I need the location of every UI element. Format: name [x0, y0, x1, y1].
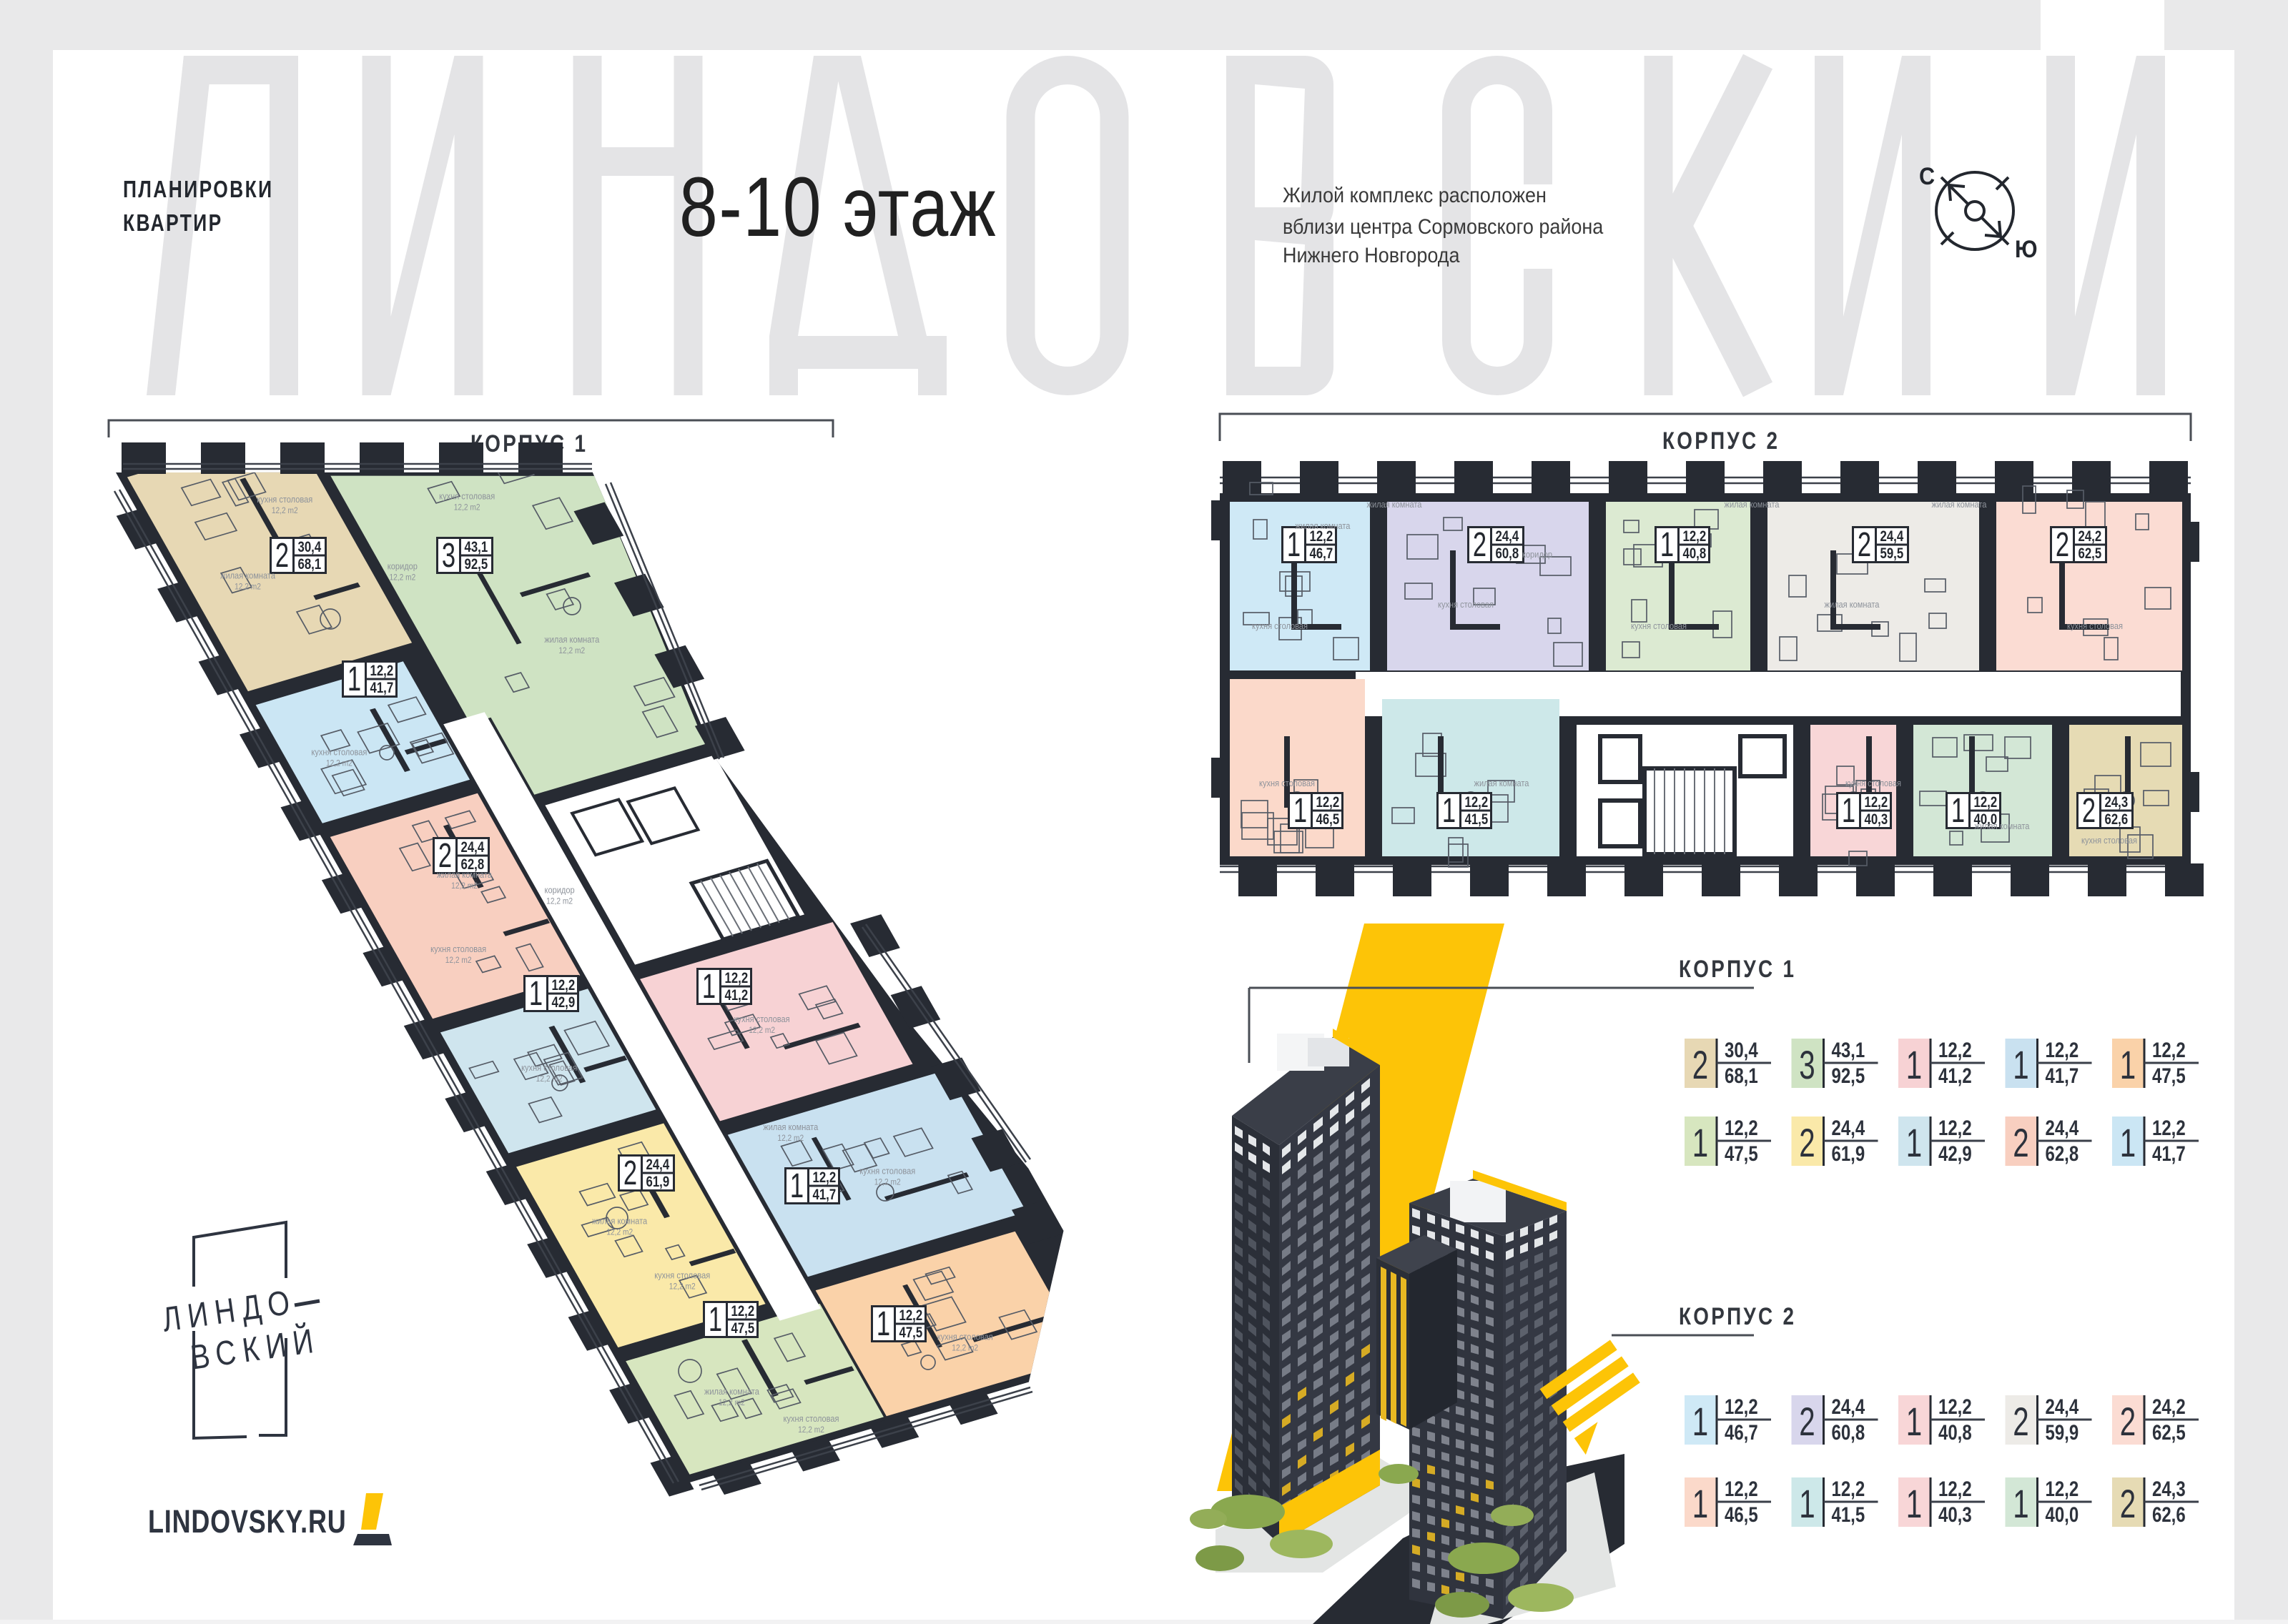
- svg-text:2: 2: [1799, 1122, 1815, 1166]
- svg-text:41,7: 41,7: [813, 1187, 837, 1203]
- svg-text:2: 2: [1473, 525, 1486, 563]
- svg-text:12,2 m2: 12,2 m2: [777, 1134, 804, 1143]
- svg-text:коридор: коридор: [545, 885, 575, 896]
- svg-text:43,1: 43,1: [1832, 1037, 1865, 1061]
- svg-text:кухня столовая: кухня столовая: [1259, 778, 1315, 788]
- svg-text:12,2 m2: 12,2 m2: [719, 1398, 745, 1407]
- svg-text:62,5: 62,5: [2079, 545, 2102, 562]
- svg-text:КВАРТИР: КВАРТИР: [123, 210, 223, 236]
- svg-text:2: 2: [1858, 525, 1871, 563]
- svg-text:1: 1: [1951, 791, 1965, 829]
- svg-text:12,2: 12,2: [1865, 794, 1888, 811]
- svg-text:12,2: 12,2: [552, 977, 576, 994]
- svg-text:3: 3: [1799, 1044, 1815, 1088]
- svg-text:24,3: 24,3: [2105, 794, 2129, 811]
- svg-text:59,5: 59,5: [1880, 545, 1904, 562]
- svg-text:60,8: 60,8: [1496, 545, 1519, 562]
- svg-text:12,2: 12,2: [1725, 1394, 1758, 1418]
- svg-text:62,5: 62,5: [2152, 1420, 2186, 1444]
- svg-text:12,2 m2: 12,2 m2: [952, 1344, 978, 1353]
- svg-text:жилая комната: жилая комната: [437, 869, 492, 880]
- svg-text:1: 1: [702, 966, 716, 1005]
- svg-text:46,7: 46,7: [1725, 1420, 1758, 1444]
- svg-text:41,5: 41,5: [1832, 1502, 1865, 1526]
- svg-text:жилая комната: жилая комната: [1825, 599, 1880, 610]
- svg-text:12,2: 12,2: [2152, 1037, 2186, 1061]
- svg-text:12,2 m2: 12,2 m2: [272, 506, 298, 515]
- svg-text:12,2 m2: 12,2 m2: [606, 1228, 633, 1237]
- svg-text:12,2 m2: 12,2 m2: [326, 759, 352, 768]
- svg-text:жилая комната: жилая комната: [220, 570, 275, 581]
- svg-text:кухня столовая: кухня столовая: [430, 944, 486, 954]
- svg-text:40,8: 40,8: [1938, 1420, 1972, 1444]
- svg-text:12,2: 12,2: [1316, 794, 1340, 811]
- svg-text:коридор: коридор: [1522, 549, 1552, 560]
- svg-text:8-10 этаж: 8-10 этаж: [679, 159, 997, 254]
- svg-text:жилая комната: жилая комната: [1367, 499, 1422, 510]
- svg-text:кухня столовая: кухня столовая: [439, 491, 495, 502]
- svg-text:1: 1: [1906, 1044, 1922, 1088]
- svg-text:1: 1: [2120, 1122, 2136, 1166]
- svg-text:30,4: 30,4: [298, 539, 322, 555]
- svg-text:61,9: 61,9: [1832, 1141, 1865, 1165]
- svg-text:68,1: 68,1: [1725, 1063, 1758, 1087]
- svg-text:30,4: 30,4: [1725, 1037, 1758, 1061]
- svg-text:43,1: 43,1: [465, 539, 488, 555]
- svg-text:кухня столовая: кухня столовая: [783, 1413, 839, 1424]
- svg-text:24,4: 24,4: [1880, 528, 1904, 545]
- svg-text:12,2 m2: 12,2 m2: [749, 1026, 775, 1035]
- svg-text:41,2: 41,2: [725, 987, 749, 1004]
- svg-text:12,2: 12,2: [1725, 1476, 1758, 1500]
- svg-text:41,2: 41,2: [1938, 1063, 1972, 1087]
- svg-text:2: 2: [2013, 1122, 2028, 1166]
- svg-text:жилая комната: жилая комната: [544, 634, 599, 645]
- svg-text:2: 2: [2120, 1482, 2136, 1527]
- svg-text:кухня столовая: кухня столовая: [1438, 599, 1494, 610]
- svg-text:2: 2: [2056, 525, 2069, 563]
- svg-text:1: 1: [2120, 1044, 2136, 1088]
- svg-text:12,2 m2: 12,2 m2: [558, 646, 585, 655]
- svg-text:92,5: 92,5: [465, 556, 488, 573]
- svg-text:12,2: 12,2: [1974, 794, 1998, 811]
- svg-text:Нижнего Новгорода: Нижнего Новгорода: [1283, 244, 1460, 268]
- svg-text:2: 2: [2120, 1400, 2136, 1445]
- svg-text:46,5: 46,5: [1316, 811, 1340, 828]
- svg-text:жилая комната: жилая комната: [1932, 499, 1987, 510]
- svg-text:12,2 m2: 12,2 m2: [454, 503, 480, 513]
- svg-text:кухня столовая: кухня столовая: [2067, 620, 2123, 631]
- svg-text:1: 1: [1692, 1122, 1708, 1166]
- svg-text:24,4: 24,4: [2046, 1115, 2079, 1139]
- svg-text:24,4: 24,4: [2046, 1394, 2079, 1418]
- svg-text:24,4: 24,4: [1832, 1115, 1865, 1139]
- svg-text:кухня столовая: кухня столовая: [654, 1270, 710, 1281]
- svg-text:1: 1: [1906, 1482, 1922, 1527]
- svg-text:жилая комната: жилая комната: [1296, 520, 1351, 531]
- svg-text:12,2 m2: 12,2 m2: [389, 573, 415, 583]
- svg-text:1: 1: [1842, 791, 1855, 829]
- svg-text:61,9: 61,9: [646, 1174, 670, 1190]
- svg-text:кухня столовая: кухня столовая: [257, 494, 312, 505]
- svg-text:12,2: 12,2: [1725, 1115, 1758, 1139]
- svg-text:12,2: 12,2: [1832, 1476, 1865, 1500]
- svg-text:КОРПУС 2: КОРПУС 2: [1662, 427, 1780, 454]
- svg-text:3: 3: [442, 535, 455, 574]
- svg-text:1: 1: [2013, 1482, 2028, 1527]
- svg-text:кухня столовая: кухня столовая: [521, 1062, 577, 1073]
- svg-text:1: 1: [709, 1299, 722, 1338]
- svg-text:12,2: 12,2: [813, 1169, 837, 1186]
- svg-text:47,5: 47,5: [1725, 1141, 1758, 1165]
- svg-text:24,3: 24,3: [2152, 1476, 2186, 1500]
- svg-text:62,8: 62,8: [2046, 1141, 2079, 1165]
- svg-text:12,2 m2: 12,2 m2: [874, 1178, 901, 1187]
- svg-text:41,5: 41,5: [1465, 811, 1489, 828]
- svg-text:12,2 m2: 12,2 m2: [536, 1074, 563, 1084]
- svg-text:12,2: 12,2: [2152, 1115, 2186, 1139]
- svg-text:1: 1: [877, 1304, 890, 1342]
- svg-text:кухня столовая: кухня столовая: [859, 1166, 915, 1177]
- svg-text:кухня столовая: кухня столовая: [2081, 835, 2137, 846]
- svg-text:12,2: 12,2: [2046, 1037, 2079, 1061]
- svg-text:24,2: 24,2: [2152, 1394, 2186, 1418]
- svg-text:12,2: 12,2: [1938, 1476, 1972, 1500]
- svg-text:41,7: 41,7: [2046, 1063, 2079, 1087]
- svg-text:12,2: 12,2: [899, 1307, 923, 1324]
- svg-text:коридор: коридор: [388, 561, 418, 572]
- svg-text:1: 1: [1906, 1122, 1922, 1166]
- svg-text:1: 1: [529, 974, 543, 1012]
- svg-text:62,6: 62,6: [2105, 811, 2129, 828]
- svg-text:2: 2: [623, 1153, 637, 1192]
- svg-text:12,2: 12,2: [1938, 1394, 1972, 1418]
- svg-text:12,2: 12,2: [1683, 528, 1707, 545]
- svg-text:24,4: 24,4: [646, 1157, 670, 1173]
- svg-text:КОРПУС 1: КОРПУС 1: [1679, 955, 1796, 982]
- svg-text:62,6: 62,6: [2152, 1502, 2186, 1526]
- svg-text:жилая комната: жилая комната: [592, 1216, 647, 1227]
- svg-text:92,5: 92,5: [1832, 1063, 1865, 1087]
- svg-text:59,9: 59,9: [2046, 1420, 2079, 1444]
- svg-text:Жилой комплекс расположен: Жилой комплекс расположен: [1283, 184, 1547, 208]
- svg-text:41,7: 41,7: [370, 680, 394, 696]
- svg-text:46,7: 46,7: [1310, 545, 1333, 562]
- svg-text:12,2: 12,2: [370, 663, 394, 679]
- svg-text:47,5: 47,5: [2152, 1063, 2186, 1087]
- svg-text:42,9: 42,9: [1938, 1141, 1972, 1165]
- svg-text:кухня столовая: кухня столовая: [311, 747, 367, 758]
- svg-text:жилая комната: жилая комната: [1725, 499, 1780, 510]
- svg-text:24,4: 24,4: [1832, 1394, 1865, 1418]
- svg-text:кухня столовая: кухня столовая: [1631, 620, 1687, 631]
- svg-text:46,5: 46,5: [1725, 1502, 1758, 1526]
- svg-text:12,2: 12,2: [1938, 1115, 1972, 1139]
- svg-text:47,5: 47,5: [899, 1325, 923, 1341]
- svg-text:жилая комната: жилая комната: [763, 1122, 818, 1132]
- svg-text:1: 1: [1293, 791, 1307, 829]
- svg-text:кухня столовая: кухня столовая: [734, 1014, 790, 1024]
- svg-text:12,2 m2: 12,2 m2: [235, 583, 261, 592]
- svg-text:LINDOVSKY.RU: LINDOVSKY.RU: [148, 1503, 347, 1540]
- svg-text:2: 2: [275, 535, 289, 574]
- svg-text:1: 1: [1906, 1400, 1922, 1445]
- svg-text:42,9: 42,9: [552, 994, 576, 1011]
- svg-text:40,0: 40,0: [2046, 1502, 2079, 1526]
- svg-text:жилая комната: жилая комната: [704, 1386, 759, 1397]
- svg-text:12,2: 12,2: [1465, 794, 1489, 811]
- svg-text:Ю: Ю: [2015, 236, 2038, 263]
- svg-text:жилая комната: жилая комната: [1474, 778, 1529, 788]
- svg-text:12,2: 12,2: [731, 1303, 755, 1319]
- svg-text:24,4: 24,4: [461, 839, 485, 856]
- svg-text:40,3: 40,3: [1938, 1502, 1972, 1526]
- svg-text:12,2 m2: 12,2 m2: [445, 956, 472, 966]
- svg-text:12,2 m2: 12,2 m2: [546, 897, 573, 906]
- svg-text:2: 2: [1692, 1044, 1708, 1088]
- svg-text:1: 1: [790, 1166, 804, 1204]
- svg-text:24,2: 24,2: [2079, 528, 2102, 545]
- svg-text:60,8: 60,8: [1832, 1420, 1865, 1444]
- svg-text:С: С: [1919, 163, 1935, 190]
- svg-text:47,5: 47,5: [731, 1320, 755, 1337]
- svg-text:кухня столовая: кухня столовая: [1845, 778, 1901, 788]
- svg-text:2: 2: [1799, 1400, 1815, 1445]
- svg-text:12,2 m2: 12,2 m2: [798, 1425, 824, 1435]
- svg-text:24,4: 24,4: [1496, 528, 1519, 545]
- svg-text:40,8: 40,8: [1683, 545, 1707, 562]
- svg-text:1: 1: [1660, 525, 1674, 563]
- svg-text:кухня столовая: кухня столовая: [1252, 620, 1308, 631]
- svg-text:1: 1: [347, 659, 361, 698]
- svg-text:2: 2: [438, 836, 452, 874]
- svg-text:1: 1: [2013, 1044, 2028, 1088]
- svg-text:40,3: 40,3: [1865, 811, 1888, 828]
- svg-text:2: 2: [2082, 791, 2096, 829]
- svg-text:68,1: 68,1: [298, 556, 322, 573]
- svg-text:1: 1: [1442, 791, 1456, 829]
- svg-text:вблизи центра Сормовского райо: вблизи центра Сормовского района: [1283, 215, 1603, 239]
- svg-text:12,2 m2: 12,2 m2: [669, 1282, 696, 1292]
- svg-text:12,2: 12,2: [725, 970, 749, 986]
- svg-text:ПЛАНИРОВКИ: ПЛАНИРОВКИ: [123, 177, 274, 202]
- svg-text:жилая комната: жилая комната: [1975, 821, 2030, 831]
- svg-text:41,7: 41,7: [2152, 1141, 2186, 1165]
- svg-text:12,2: 12,2: [2046, 1476, 2079, 1500]
- svg-text:кухня столовая: кухня столовая: [937, 1332, 993, 1342]
- svg-text:12,2 m2: 12,2 m2: [451, 881, 478, 891]
- svg-text:1: 1: [1799, 1482, 1815, 1527]
- svg-text:1: 1: [1692, 1400, 1708, 1445]
- svg-text:1: 1: [1692, 1482, 1708, 1527]
- svg-text:КОРПУС 2: КОРПУС 2: [1679, 1302, 1796, 1330]
- svg-text:2: 2: [2013, 1400, 2028, 1445]
- svg-text:12,2: 12,2: [1938, 1037, 1972, 1061]
